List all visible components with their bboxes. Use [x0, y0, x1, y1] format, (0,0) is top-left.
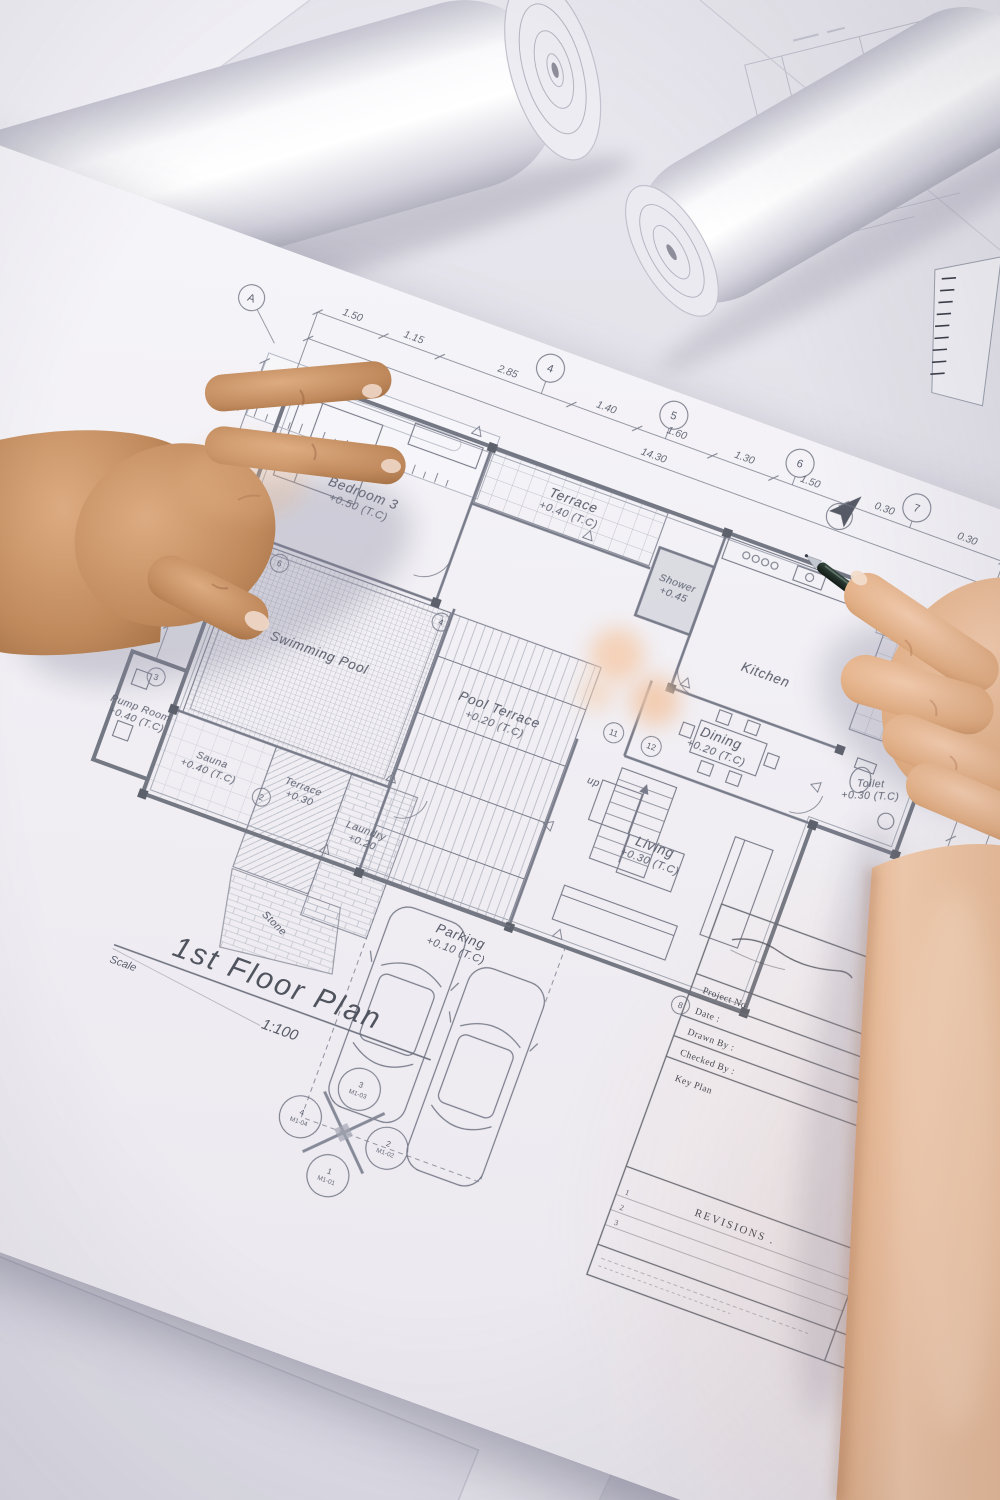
figures: [0, 0, 1000, 1500]
photo-architect-blueprint: Terrace +0.40 (T.C) Bedroom 3 +0.50 (T.C…: [0, 0, 1000, 1500]
